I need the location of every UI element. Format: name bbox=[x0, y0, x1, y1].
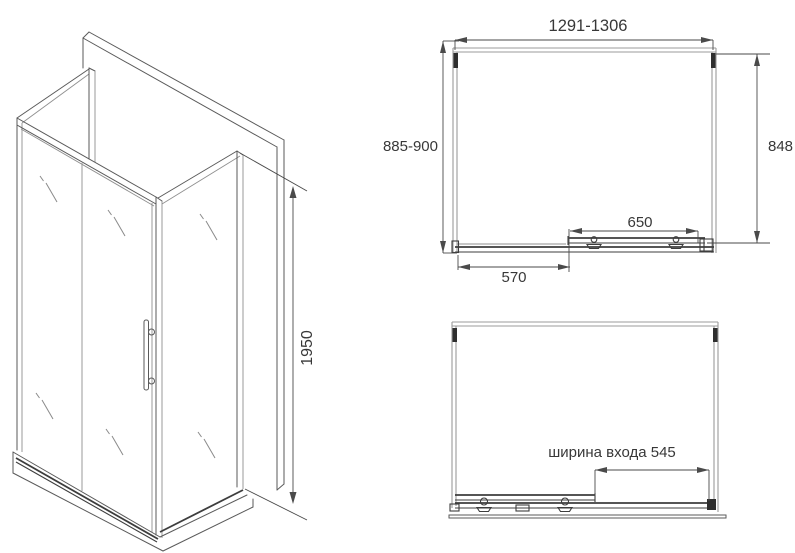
back-wall-panel bbox=[83, 32, 284, 490]
base-tray bbox=[13, 452, 253, 551]
left-side-panel bbox=[17, 68, 95, 162]
iso-view: 1950 bbox=[13, 32, 316, 551]
dimension-right-depth: 848 bbox=[707, 54, 793, 243]
height-dimension-label: 1950 bbox=[299, 330, 316, 366]
dimension-left-depth: 885-900 bbox=[383, 41, 459, 253]
dimension-height: 1950 bbox=[240, 153, 316, 520]
plan-walls bbox=[453, 48, 716, 253]
door-stopper bbox=[707, 499, 716, 510]
dimension-width: 1291-1306 bbox=[455, 17, 713, 50]
wall-profile-right bbox=[711, 53, 716, 68]
right-depth-label: 848 bbox=[768, 138, 793, 155]
entrance-bottom-rail bbox=[449, 493, 726, 518]
top-view: 1291-1306 885-900 848 650 bbox=[383, 17, 793, 286]
right-side-panel bbox=[158, 151, 243, 489]
door-section-label: 650 bbox=[627, 214, 652, 231]
entrance-walls bbox=[452, 322, 718, 512]
wall-profile-left bbox=[454, 53, 459, 68]
dimension-panel: 570 bbox=[458, 255, 570, 286]
glass-reflection-marks bbox=[36, 176, 217, 458]
technical-drawing-canvas: 1950 bbox=[0, 0, 795, 553]
front-view: ширина входа 545 bbox=[449, 322, 726, 518]
width-range-label: 1291-1306 bbox=[549, 17, 628, 35]
wall-profile-left bbox=[453, 328, 458, 342]
left-depth-label: 885-900 bbox=[383, 138, 438, 155]
panel-section-label: 570 bbox=[501, 269, 526, 286]
wall-profile-right bbox=[713, 328, 718, 342]
door-handle bbox=[144, 320, 155, 390]
entrance-width-label: ширина входа 545 bbox=[548, 444, 676, 461]
dimension-entrance: ширина входа 545 bbox=[548, 444, 709, 501]
plan-bottom-rail bbox=[452, 236, 714, 253]
